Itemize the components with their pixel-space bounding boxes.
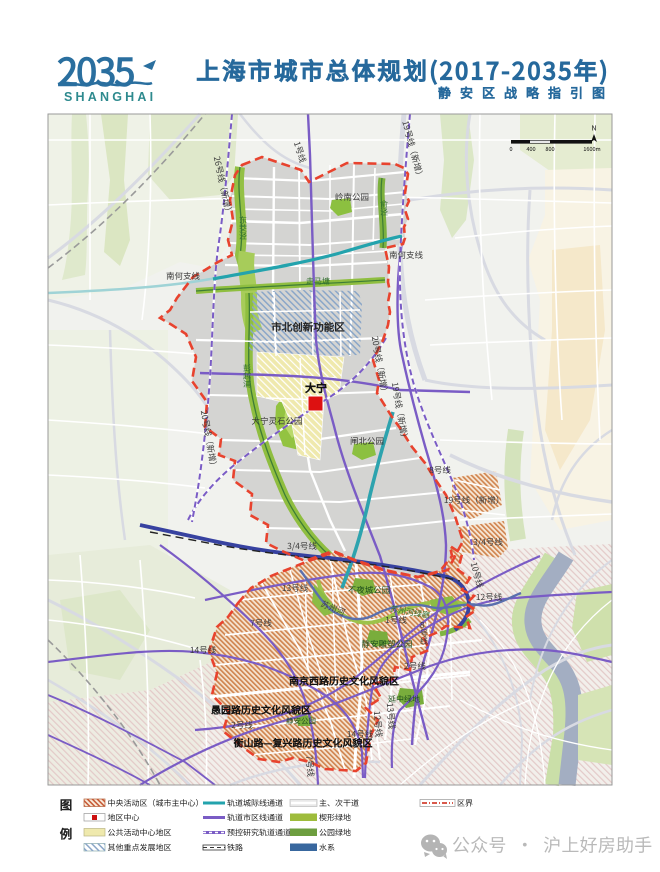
svg-text:SHANGHAI: SHANGHAI xyxy=(64,90,156,104)
